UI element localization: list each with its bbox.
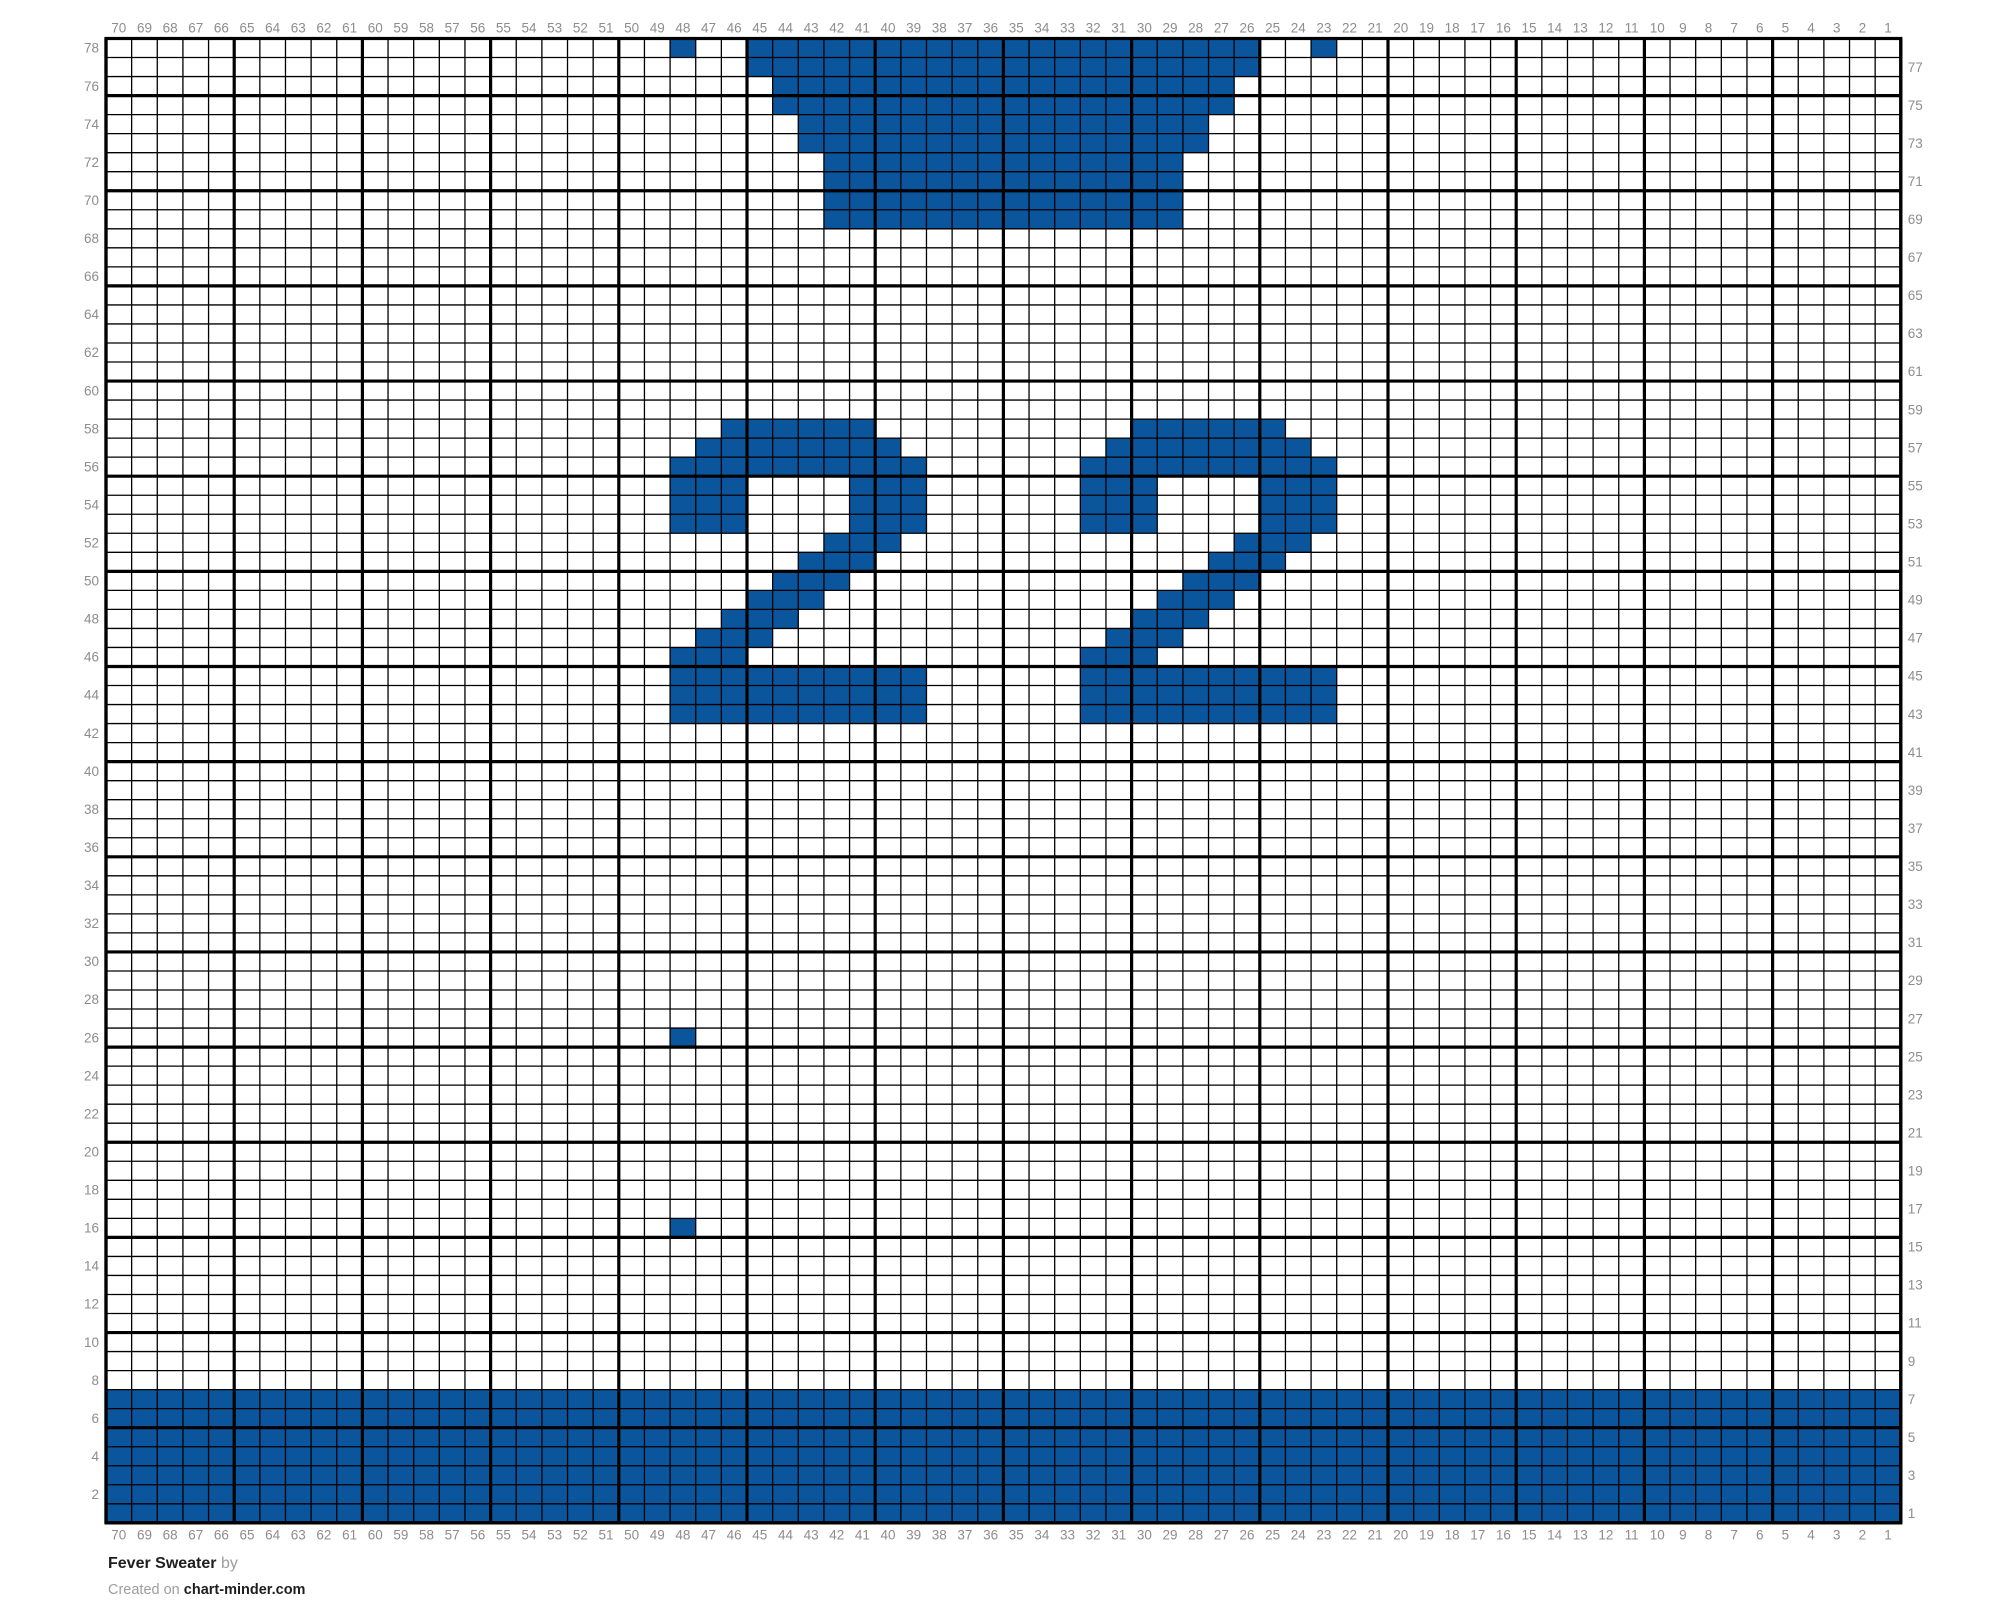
grid-label: 7 — [1730, 21, 1738, 36]
grid-label: 67 — [1908, 250, 1923, 265]
grid-label: 50 — [624, 21, 639, 36]
grid-label: 71 — [1908, 174, 1923, 189]
grid-label: 59 — [1908, 402, 1923, 417]
grid-label: 18 — [1445, 1527, 1460, 1542]
grid-label: 2 — [1859, 1527, 1867, 1542]
grid-label: 65 — [1908, 288, 1923, 303]
grid-label: 73 — [1908, 136, 1923, 151]
stitch-run-row-50 — [773, 571, 850, 590]
stitch-run-row-52 — [824, 533, 901, 552]
stitch-run-row-78 — [1311, 39, 1337, 58]
page: 7069686766656463626160595857565554535251… — [0, 0, 2007, 1624]
grid-label: 7 — [1730, 1527, 1738, 1542]
grid-label: 22 — [84, 1106, 99, 1121]
stitch-run-row-54 — [1260, 495, 1337, 514]
grid-label: 19 — [1908, 1163, 1923, 1178]
grid-label: 4 — [1807, 1527, 1815, 1542]
grid-label: 2 — [91, 1487, 99, 1502]
grid-label: 62 — [316, 1527, 331, 1542]
grid-label: 38 — [84, 802, 99, 817]
grid-label: 29 — [1163, 1527, 1178, 1542]
grid-label: 35 — [1009, 21, 1024, 36]
grid-label: 39 — [1908, 783, 1923, 798]
grid-label: 52 — [573, 21, 588, 36]
grid-label: 39 — [906, 21, 921, 36]
grid-label: 49 — [650, 21, 665, 36]
created-on-label: Created on — [108, 1582, 180, 1598]
grid-label: 58 — [419, 1527, 434, 1542]
grid-label: 12 — [84, 1297, 99, 1312]
grid-label: 51 — [1908, 555, 1923, 570]
grid-label: 53 — [547, 21, 562, 36]
stitch-run-row-46 — [1080, 647, 1157, 666]
grid-label: 48 — [675, 21, 690, 36]
grid-label: 58 — [84, 421, 99, 436]
grid-label: 11 — [1625, 21, 1639, 36]
grid-label: 25 — [1265, 1527, 1280, 1542]
grid-label: 13 — [1908, 1278, 1923, 1293]
grid-label: 69 — [1908, 212, 1923, 227]
grid-label: 21 — [1368, 1527, 1383, 1542]
grid-label: 1 — [1908, 1506, 1916, 1521]
grid-label: 28 — [84, 992, 99, 1007]
grid-label: 24 — [84, 1068, 100, 1083]
grid-label: 46 — [84, 650, 99, 665]
grid-label: 30 — [1137, 1527, 1152, 1542]
grid-label: 5 — [1782, 1527, 1790, 1542]
grid-label: 54 — [84, 497, 100, 512]
grid-label: 36 — [983, 1527, 998, 1542]
grid-label: 16 — [84, 1221, 99, 1236]
grid-label: 26 — [1239, 21, 1254, 36]
grid-label: 1 — [1884, 1527, 1892, 1542]
grid-label: 52 — [84, 536, 99, 551]
grid-label: 14 — [84, 1259, 100, 1274]
grid-label: 9 — [1908, 1354, 1916, 1369]
grid-label: 70 — [111, 21, 126, 36]
stitch-run-row-78 — [670, 39, 696, 58]
grid-label: 20 — [1393, 21, 1408, 36]
grid-label: 22 — [1342, 21, 1357, 36]
grid-label: 46 — [727, 1527, 742, 1542]
grid-label: 57 — [445, 1527, 460, 1542]
grid-label: 47 — [701, 1527, 716, 1542]
grid-label: 5 — [1782, 21, 1790, 36]
grid-label: 66 — [214, 1527, 229, 1542]
grid-label: 24 — [1291, 21, 1307, 36]
grid-label: 47 — [1908, 631, 1923, 646]
grid-label: 43 — [804, 1527, 819, 1542]
grid-label: 30 — [1137, 21, 1152, 36]
grid-label: 37 — [1908, 821, 1923, 836]
grid-label: 13 — [1573, 21, 1588, 36]
grid-label: 58 — [419, 21, 434, 36]
stitch-run-row-48 — [721, 609, 798, 628]
grid-label: 18 — [1445, 21, 1460, 36]
stitch-run-row-55 — [1080, 476, 1157, 495]
grid-label: 68 — [163, 1527, 178, 1542]
grid-label: 11 — [1625, 1527, 1639, 1542]
stitch-run-row-49 — [1157, 590, 1234, 609]
grid-label: 59 — [393, 21, 408, 36]
grid-label: 61 — [342, 21, 357, 36]
stitch-run-row-49 — [747, 590, 824, 609]
grid-label: 32 — [1086, 1527, 1101, 1542]
grid-label: 35 — [1908, 859, 1923, 874]
grid-label: 34 — [84, 878, 100, 893]
grid-label: 48 — [84, 612, 99, 627]
grid-label: 76 — [84, 79, 99, 94]
stitch-run-row-26 — [670, 1028, 696, 1047]
grid-label: 12 — [1598, 21, 1613, 36]
grid-label: 63 — [291, 1527, 306, 1542]
grid-label: 19 — [1419, 1527, 1434, 1542]
grid-label: 14 — [1547, 1527, 1563, 1542]
grid-label: 16 — [1496, 1527, 1511, 1542]
stitch-run-row-55 — [1260, 476, 1337, 495]
grid-label: 50 — [84, 574, 99, 589]
grid-label: 35 — [1009, 1527, 1024, 1542]
grid-label: 2 — [1859, 21, 1867, 36]
chart-credit-line: Created on chart-minder.com — [108, 1581, 305, 1600]
grid-label: 3 — [1833, 1527, 1841, 1542]
grid-label: 62 — [84, 345, 99, 360]
grid-label: 39 — [906, 1527, 921, 1542]
grid-label: 62 — [316, 21, 331, 36]
grid-label: 74 — [84, 117, 100, 132]
grid-label: 75 — [1908, 98, 1923, 113]
column-labels-top: 7069686766656463626160595857565554535251… — [111, 21, 1891, 36]
chart-title: Fever Sweater — [108, 1555, 217, 1572]
grid-label: 66 — [214, 21, 229, 36]
grid-label: 42 — [829, 1527, 844, 1542]
grid-label: 27 — [1214, 1527, 1229, 1542]
grid-label: 17 — [1908, 1202, 1923, 1217]
grid-label: 63 — [1908, 326, 1923, 341]
knitting-chart-svg: 7069686766656463626160595857565554535251… — [0, 0, 2007, 1560]
grid-label: 9 — [1679, 1527, 1687, 1542]
grid-label: 23 — [1316, 1527, 1331, 1542]
grid-label: 42 — [84, 726, 99, 741]
grid-label: 9 — [1679, 21, 1687, 36]
grid-label: 45 — [752, 1527, 767, 1542]
grid-label: 43 — [804, 21, 819, 36]
grid-label: 27 — [1214, 21, 1229, 36]
stitch-run-row-55 — [670, 476, 747, 495]
grid-label: 44 — [778, 1527, 794, 1542]
grid-label: 38 — [932, 1527, 947, 1542]
chart-author-by-label: by — [221, 1555, 238, 1572]
grid-label: 28 — [1188, 21, 1203, 36]
grid-label: 63 — [291, 21, 306, 36]
grid-label: 6 — [1756, 21, 1764, 36]
grid-label: 33 — [1908, 897, 1923, 912]
grid-label: 56 — [470, 21, 485, 36]
grid-label: 33 — [1060, 1527, 1075, 1542]
grid-label: 29 — [1163, 21, 1178, 36]
grid-label: 49 — [1908, 593, 1923, 608]
grid-label: 27 — [1908, 1011, 1923, 1026]
grid-label: 6 — [1756, 1527, 1764, 1542]
grid-label: 44 — [84, 688, 100, 703]
grid-label: 18 — [84, 1183, 99, 1198]
grid-label: 60 — [368, 1527, 383, 1542]
grid-label: 67 — [188, 1527, 203, 1542]
grid-label: 57 — [445, 21, 460, 36]
stitch-run-row-51 — [798, 552, 875, 571]
stitch-run-row-50 — [1183, 571, 1260, 590]
grid-label: 55 — [496, 1527, 511, 1542]
stitch-run-row-46 — [670, 647, 747, 666]
grid-label: 34 — [1034, 21, 1050, 36]
row-labels-right: 7775737169676563615957555351494745434139… — [1908, 60, 1923, 1521]
grid-label: 47 — [701, 21, 716, 36]
grid-label: 25 — [1265, 21, 1280, 36]
grid-label: 37 — [957, 1527, 972, 1542]
grid-label: 8 — [91, 1373, 99, 1388]
grid-label: 61 — [1908, 364, 1923, 379]
grid-label: 17 — [1470, 21, 1485, 36]
grid-label: 55 — [496, 21, 511, 36]
grid-label: 54 — [522, 1527, 538, 1542]
grid-label: 31 — [1111, 21, 1126, 36]
grid-label: 46 — [727, 21, 742, 36]
grid-label: 51 — [598, 1527, 613, 1542]
grid-label: 66 — [84, 269, 99, 284]
grid-label: 30 — [84, 954, 99, 969]
grid-label: 20 — [1393, 1527, 1408, 1542]
grid-label: 55 — [1908, 478, 1923, 493]
row-labels-left: 7876747270686664626058565452504846444240… — [84, 41, 100, 1502]
stitch-run-row-51 — [1209, 552, 1286, 571]
knitting-chart: 7069686766656463626160595857565554535251… — [0, 0, 2007, 1560]
grid-label: 32 — [84, 916, 99, 931]
grid-label: 7 — [1908, 1392, 1916, 1407]
grid-label: 49 — [650, 1527, 665, 1542]
grid-label: 60 — [368, 21, 383, 36]
grid-label: 43 — [1908, 707, 1923, 722]
grid-label: 70 — [84, 193, 99, 208]
grid-label: 10 — [1650, 1527, 1665, 1542]
grid-label: 15 — [1908, 1240, 1923, 1255]
grid-label: 29 — [1908, 973, 1923, 988]
stitch-run-row-53 — [1260, 514, 1337, 533]
grid-label: 70 — [111, 1527, 126, 1542]
grid-label: 24 — [1291, 1527, 1307, 1542]
stitch-run-row-52 — [1234, 533, 1311, 552]
stitch-run-row-53 — [670, 514, 747, 533]
grid-label: 11 — [1908, 1316, 1922, 1331]
grid-label: 36 — [84, 840, 99, 855]
grid-label: 45 — [752, 21, 767, 36]
grid-label: 40 — [84, 764, 99, 779]
grid-label: 25 — [1908, 1049, 1923, 1064]
grid-label: 45 — [1908, 669, 1923, 684]
grid-label: 64 — [265, 21, 281, 36]
grid-label: 42 — [829, 21, 844, 36]
grid-label: 40 — [881, 21, 896, 36]
grid-label: 41 — [1908, 745, 1923, 760]
grid-label: 61 — [342, 1527, 357, 1542]
grid-label: 28 — [1188, 1527, 1203, 1542]
grid-label: 17 — [1470, 1527, 1485, 1542]
grid-label: 41 — [855, 21, 870, 36]
grid-label: 77 — [1908, 60, 1923, 75]
grid-label: 65 — [240, 21, 255, 36]
stitch-run-row-54 — [850, 495, 927, 514]
grid-label: 69 — [137, 1527, 152, 1542]
grid-label: 40 — [881, 1527, 896, 1542]
chart-footer: Fever Sweater by Created on chart-minder… — [108, 1554, 305, 1600]
grid-label: 13 — [1573, 1527, 1588, 1542]
grid-label: 8 — [1705, 1527, 1713, 1542]
grid-label: 32 — [1086, 21, 1101, 36]
grid-label: 69 — [137, 21, 152, 36]
grid-label: 37 — [957, 21, 972, 36]
grid-label: 3 — [1908, 1468, 1916, 1483]
grid-label: 68 — [84, 231, 99, 246]
grid-label: 4 — [91, 1449, 99, 1464]
grid-label: 54 — [522, 21, 538, 36]
stitch-run-row-54 — [670, 495, 747, 514]
grid-label: 65 — [240, 1527, 255, 1542]
grid-label: 57 — [1908, 440, 1923, 455]
grid-label: 60 — [84, 383, 99, 398]
grid-label: 31 — [1908, 935, 1923, 950]
stitch-run-row-47 — [696, 628, 773, 647]
grid-label: 23 — [1908, 1087, 1923, 1102]
grid-label: 67 — [188, 21, 203, 36]
grid-label: 12 — [1598, 1527, 1613, 1542]
stitch-run-row-53 — [1080, 514, 1157, 533]
grid-label: 64 — [84, 307, 100, 322]
grid-label: 44 — [778, 21, 794, 36]
stitch-run-row-54 — [1080, 495, 1157, 514]
grid-label: 56 — [84, 459, 99, 474]
grid-label: 53 — [547, 1527, 562, 1542]
grid-label: 50 — [624, 1527, 639, 1542]
grid-label: 72 — [84, 155, 99, 170]
grid-label: 53 — [1908, 516, 1923, 531]
grid-label: 48 — [675, 1527, 690, 1542]
grid-label: 19 — [1419, 21, 1434, 36]
grid-label: 6 — [91, 1411, 99, 1426]
grid-label: 22 — [1342, 1527, 1357, 1542]
stitch-run-row-48 — [1132, 609, 1209, 628]
grid-label: 34 — [1034, 1527, 1050, 1542]
stitch-run-row-53 — [850, 514, 927, 533]
grid-label: 38 — [932, 21, 947, 36]
grid-label: 21 — [1908, 1125, 1923, 1140]
grid-label: 16 — [1496, 21, 1511, 36]
grid-label: 20 — [84, 1144, 99, 1159]
grid-label: 15 — [1522, 21, 1537, 36]
grid-label: 10 — [1650, 21, 1665, 36]
grid-label: 26 — [84, 1030, 99, 1045]
grid-label: 14 — [1547, 21, 1563, 36]
grid-label: 26 — [1239, 1527, 1254, 1542]
grid-label: 1 — [1884, 21, 1892, 36]
grid-label: 10 — [84, 1335, 99, 1350]
grid-label: 3 — [1833, 21, 1841, 36]
grid-label: 8 — [1705, 21, 1713, 36]
grid-label: 56 — [470, 1527, 485, 1542]
grid-label: 52 — [573, 1527, 588, 1542]
stitch-run-row-16 — [670, 1218, 696, 1237]
grid-label: 21 — [1368, 21, 1383, 36]
grid-label: 68 — [163, 21, 178, 36]
grid-label: 64 — [265, 1527, 281, 1542]
chart-title-line: Fever Sweater by — [108, 1554, 305, 1574]
grid-label: 4 — [1807, 21, 1815, 36]
grid-label: 23 — [1316, 21, 1331, 36]
grid-label: 15 — [1522, 1527, 1537, 1542]
grid-label: 33 — [1060, 21, 1075, 36]
stitch-run-row-47 — [1106, 628, 1183, 647]
chart-minder-link[interactable]: chart-minder.com — [184, 1582, 306, 1598]
grid-label: 36 — [983, 21, 998, 36]
grid-label: 41 — [855, 1527, 870, 1542]
grid-label: 59 — [393, 1527, 408, 1542]
grid-label: 31 — [1111, 1527, 1126, 1542]
stitch-run-row-55 — [850, 476, 927, 495]
column-labels-bottom: 7069686766656463626160595857565554535251… — [111, 1527, 1891, 1542]
grid-label: 5 — [1908, 1430, 1916, 1445]
grid-label: 78 — [84, 41, 99, 56]
grid-label: 51 — [598, 21, 613, 36]
